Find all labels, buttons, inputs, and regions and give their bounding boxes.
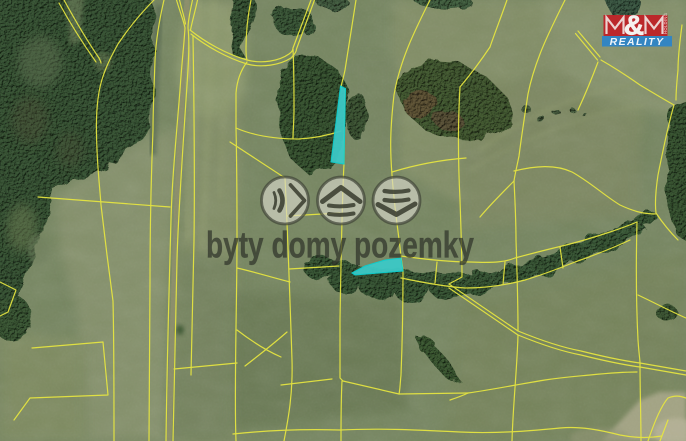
svg-text:REALITY: REALITY <box>610 36 665 48</box>
svg-text:HOLDING: HOLDING <box>663 13 668 34</box>
svg-text:byty domy pozemky: byty domy pozemky <box>206 224 474 266</box>
